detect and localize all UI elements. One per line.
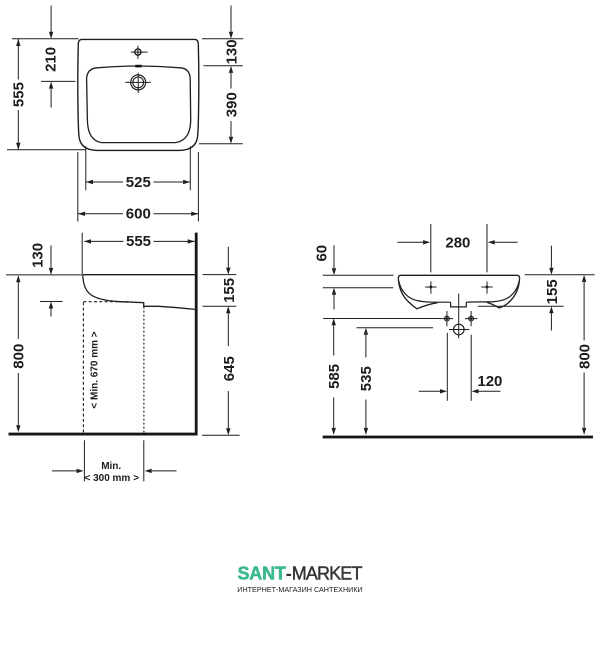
svg-text:645: 645 [221,356,238,381]
svg-text:155: 155 [544,279,561,304]
svg-text:60: 60 [314,245,331,262]
svg-text:< 300 mm >: < 300 mm > [84,473,139,484]
svg-text:ИНТЕРНЕТ-МАГАЗИН САНТЕХНИКИ: ИНТЕРНЕТ-МАГАЗИН САНТЕХНИКИ [237,585,362,594]
svg-text:130: 130 [30,243,47,268]
svg-text:Min.: Min. [101,461,121,472]
svg-text:155: 155 [221,278,238,303]
svg-text:SANT-MARKET: SANT-MARKET [238,564,363,584]
svg-text:585: 585 [326,364,343,389]
svg-text:< Min. 670 mm >: < Min. 670 mm > [89,331,100,408]
svg-text:555: 555 [11,82,28,107]
svg-text:535: 535 [358,366,375,391]
svg-text:600: 600 [126,206,151,223]
svg-text:130: 130 [223,39,240,64]
svg-text:120: 120 [477,373,502,390]
svg-text:280: 280 [445,235,470,252]
svg-text:555: 555 [126,233,151,250]
svg-text:525: 525 [126,174,151,191]
svg-text:800: 800 [576,344,593,369]
svg-text:390: 390 [223,92,240,117]
svg-text:210: 210 [42,47,59,72]
svg-text:800: 800 [11,344,28,369]
